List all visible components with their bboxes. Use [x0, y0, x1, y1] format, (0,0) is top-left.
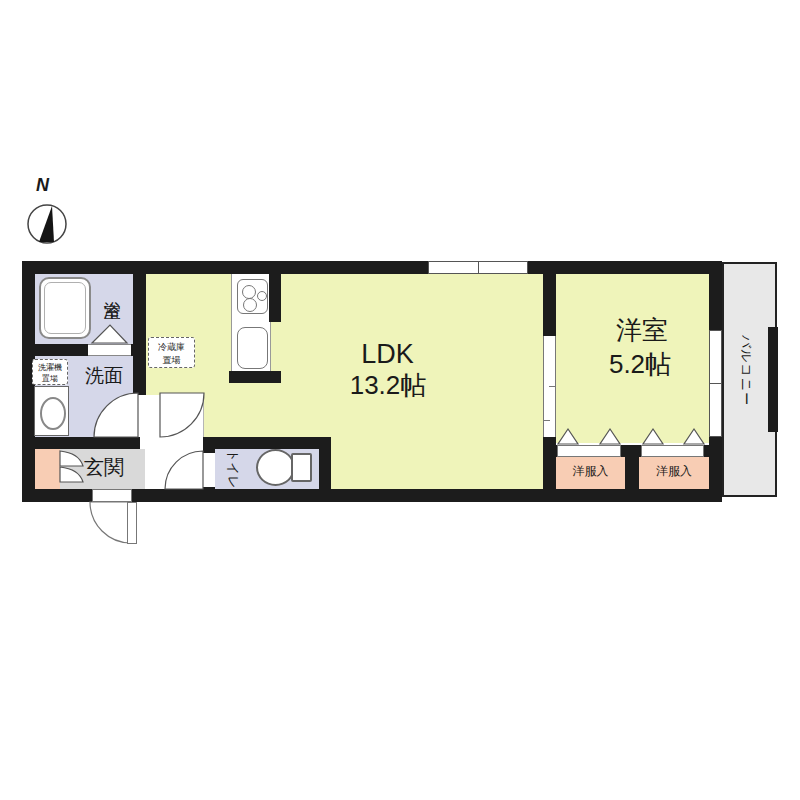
label-toilet: トイレ: [226, 449, 240, 489]
label-washroom: 洗面: [72, 366, 136, 386]
label-western-name: 洋室: [578, 317, 706, 344]
label-western-area: 5.2帖: [576, 351, 704, 378]
stove-burner: [243, 298, 257, 312]
door-arc-washroom: [94, 393, 138, 437]
folding-door-closet-icon: [558, 429, 578, 444]
fridge-space-box: 冷蔵庫 置場: [148, 337, 195, 368]
label-ldk-name: LDK: [320, 340, 455, 368]
fridge-space-line1: 冷蔵庫: [149, 341, 194, 354]
kitchen-sink-icon: [237, 327, 268, 369]
door-arc-hall: [160, 393, 204, 437]
label-ldk-area: 13.2帖: [318, 372, 458, 399]
label-closet-right: 洋服入: [639, 465, 709, 478]
label-closet-left: 洋服入: [556, 465, 625, 478]
toilet-tank-icon: [291, 453, 312, 482]
bathtub-inner: [44, 282, 86, 334]
stove-burner: [242, 285, 256, 299]
washer-space-line2: 置場: [33, 373, 67, 384]
washing-machine-drum: [40, 397, 66, 430]
plan-symbols: [0, 0, 800, 800]
compass-north-label: N: [36, 176, 49, 195]
label-entrance: 玄関: [62, 457, 146, 478]
bathtub-icon: [39, 277, 91, 339]
toilet-bowl-icon: [256, 449, 295, 486]
washing-machine-icon: [34, 386, 69, 436]
stove-icon: [237, 279, 268, 314]
label-bathroom: 浴室: [103, 287, 121, 345]
label-balcony: バルコニー: [739, 335, 753, 443]
stove-burner-small: [257, 291, 267, 301]
floor-plan: 洗濯機 置場 冷蔵庫 置場 N 浴室 洗面 玄関 トイレ LDK 13.2帖 洋…: [0, 0, 800, 800]
folding-door-closet-icon: [684, 429, 704, 444]
washer-space-line1: 洗濯機: [33, 362, 67, 373]
folding-door-closet-icon: [643, 429, 663, 444]
fridge-space-line2: 置場: [149, 354, 194, 367]
washer-space-box: 洗濯機 置場: [32, 359, 68, 385]
entrance-door-leaf: [127, 502, 137, 544]
door-arc-toilet: [165, 451, 203, 489]
door-arc-entrance: [90, 502, 131, 543]
folding-door-closet-icon: [600, 429, 620, 444]
